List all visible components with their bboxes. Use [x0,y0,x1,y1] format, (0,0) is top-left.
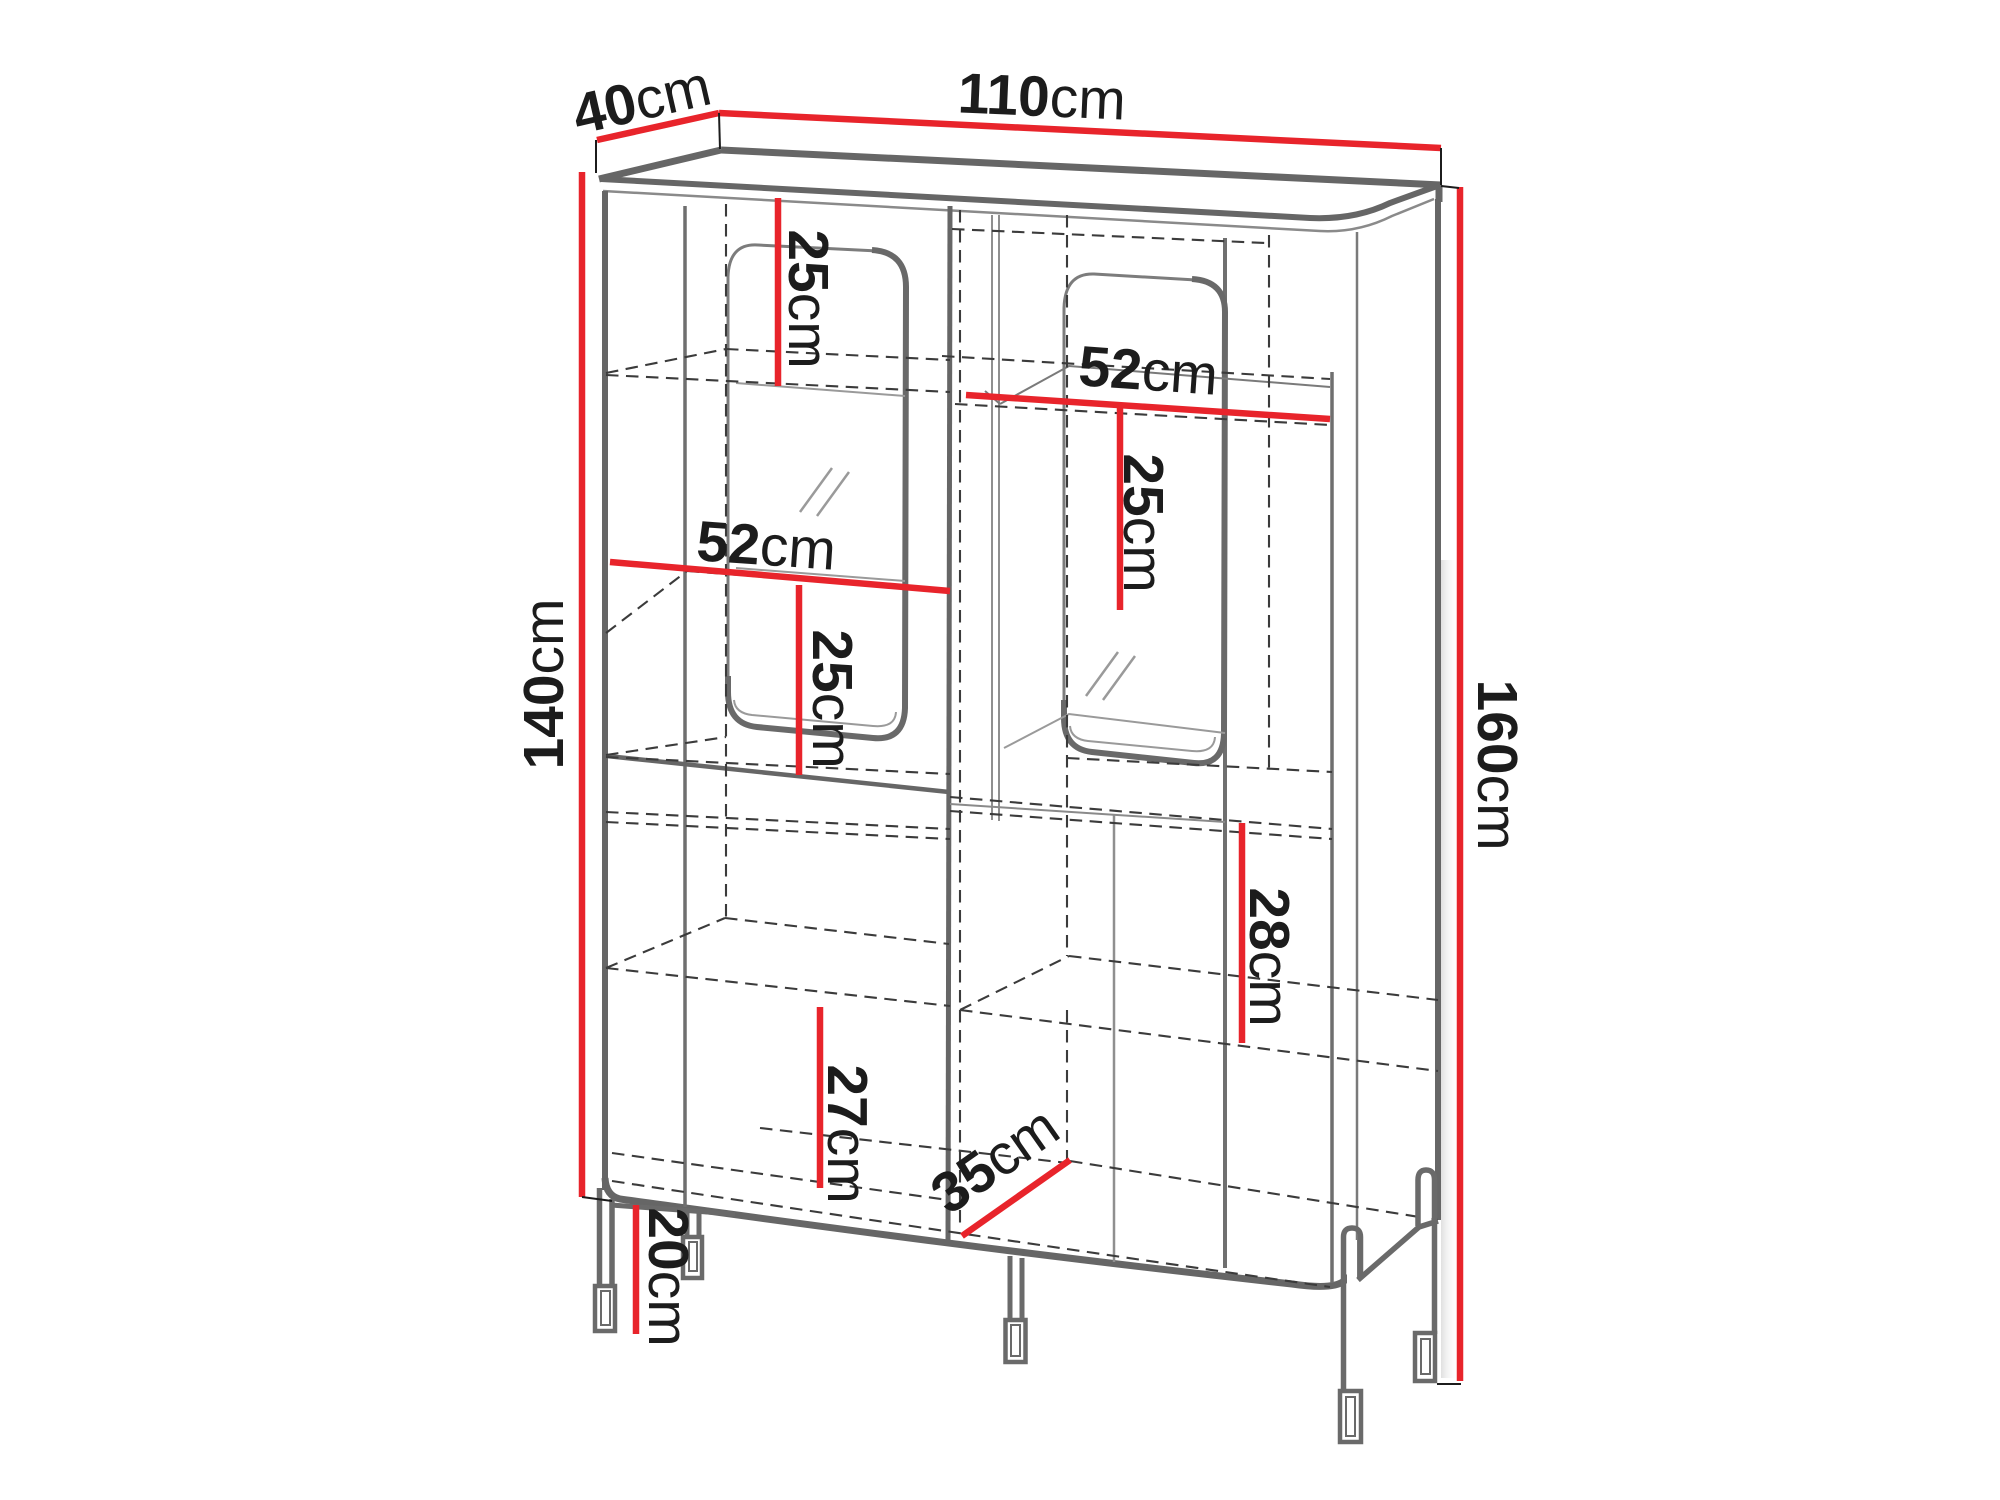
svg-text:140cm: 140cm [512,598,576,769]
svg-text:52cm: 52cm [695,509,839,583]
svg-text:28cm: 28cm [1237,887,1301,1026]
svg-text:160cm: 160cm [1465,679,1529,850]
svg-text:25cm: 25cm [1111,453,1175,592]
svg-text:25cm: 25cm [776,229,840,368]
svg-text:25cm: 25cm [800,629,864,768]
svg-text:20cm: 20cm [636,1207,700,1346]
svg-text:27cm: 27cm [815,1064,879,1203]
svg-text:52cm: 52cm [1077,334,1221,408]
svg-text:110cm: 110cm [957,61,1128,132]
